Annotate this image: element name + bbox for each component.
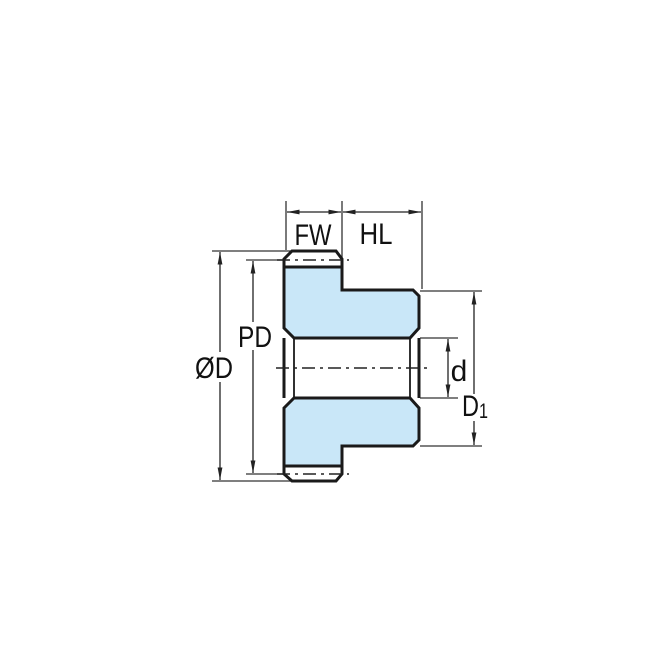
fw-label: FW (295, 219, 333, 252)
pd-label: PD (238, 321, 272, 354)
gear-body-lower (284, 398, 419, 466)
gear-dimension-drawing: FW HL ØD PD d D1 (0, 0, 670, 670)
gear-tooth-top (284, 251, 342, 267)
od-label: ØD (195, 352, 233, 385)
hl-label: HL (360, 218, 393, 251)
gear-body-upper (284, 267, 419, 338)
d-label: d (451, 355, 468, 388)
gear-part (284, 251, 419, 481)
drawing-canvas: FW HL ØD PD d D1 (0, 0, 670, 670)
